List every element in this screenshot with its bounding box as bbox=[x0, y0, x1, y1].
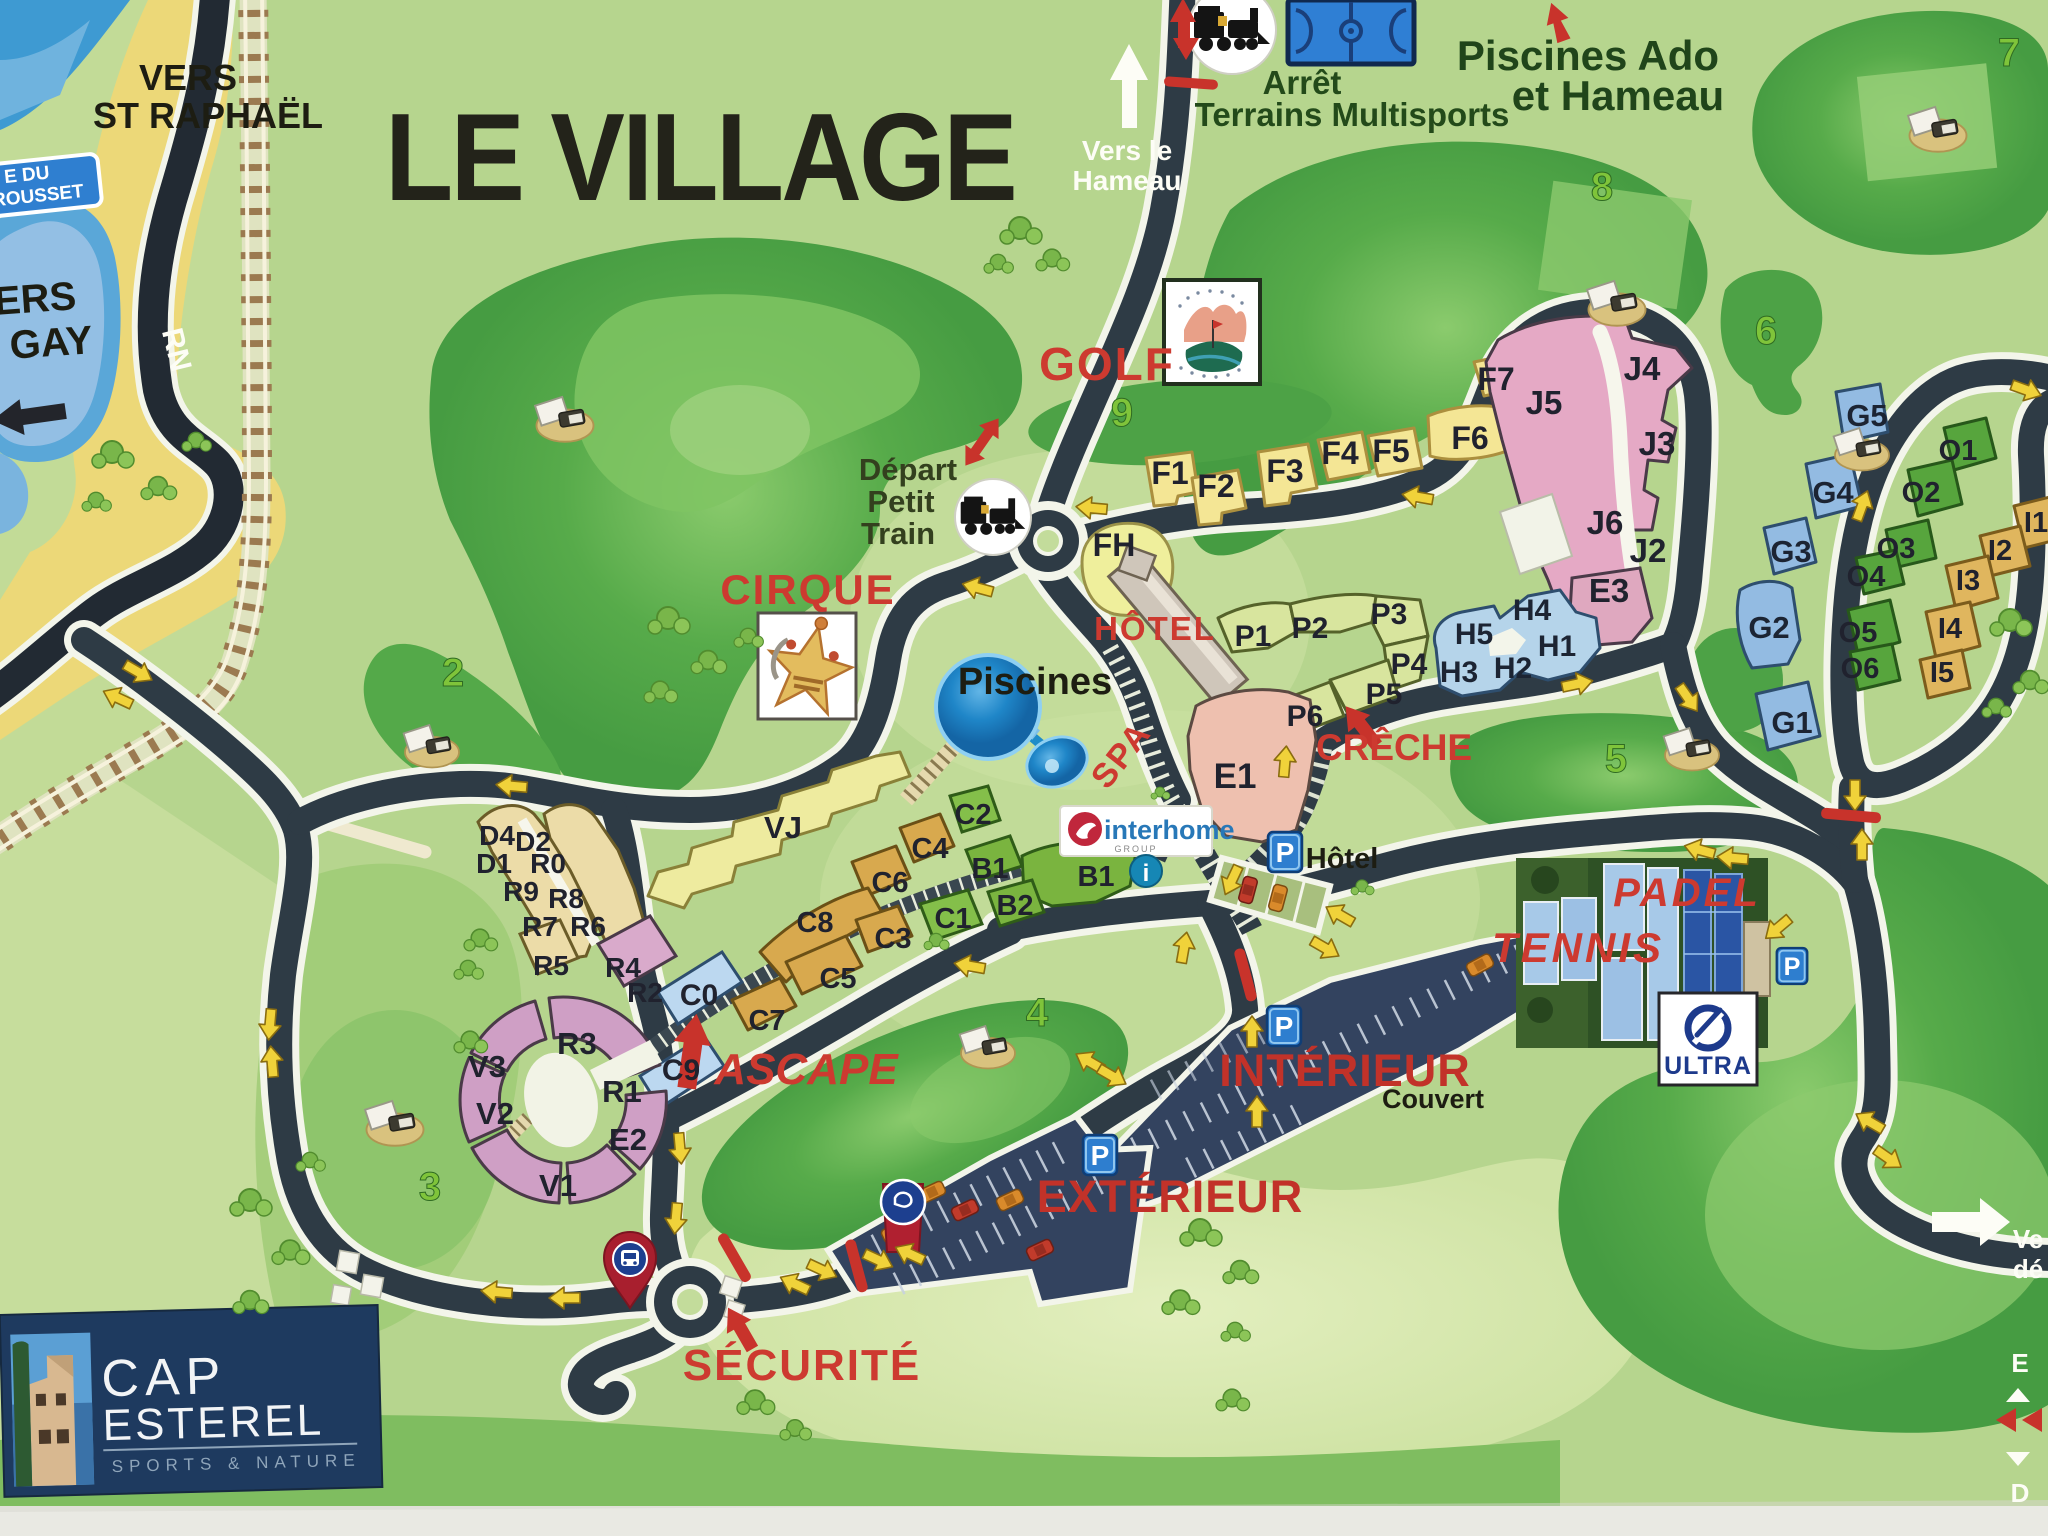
svg-text:Couvert: Couvert bbox=[1382, 1084, 1484, 1114]
svg-text:R7: R7 bbox=[522, 911, 558, 942]
svg-text:R8: R8 bbox=[548, 883, 584, 914]
svg-text:CIRQUE: CIRQUE bbox=[720, 566, 895, 613]
svg-text:P3: P3 bbox=[1371, 598, 1408, 631]
svg-text:I4: I4 bbox=[1938, 613, 1962, 645]
svg-text:G4: G4 bbox=[1812, 475, 1854, 510]
svg-text:P2: P2 bbox=[1292, 612, 1329, 645]
svg-text:C2: C2 bbox=[954, 799, 991, 831]
svg-text:H3: H3 bbox=[1440, 656, 1478, 689]
svg-text:G2: G2 bbox=[1748, 610, 1789, 645]
svg-text:V3: V3 bbox=[468, 1049, 506, 1084]
svg-text:O2: O2 bbox=[1902, 477, 1941, 509]
svg-text:H4: H4 bbox=[1513, 594, 1552, 627]
svg-text:C9: C9 bbox=[662, 1054, 700, 1087]
svg-text:O6: O6 bbox=[1841, 653, 1880, 685]
svg-text:2: 2 bbox=[442, 651, 464, 695]
svg-text:Petit: Petit bbox=[867, 484, 934, 519]
svg-text:E1: E1 bbox=[1214, 757, 1257, 796]
svg-text:Terrains Multisports: Terrains Multisports bbox=[1195, 96, 1510, 133]
svg-text:O1: O1 bbox=[1939, 435, 1978, 467]
svg-text:TENNIS: TENNIS bbox=[1492, 924, 1664, 971]
svg-text:Départ: Départ bbox=[859, 452, 957, 487]
svg-text:ULTRA: ULTRA bbox=[1664, 1052, 1752, 1080]
svg-text:B1: B1 bbox=[1077, 861, 1114, 893]
svg-text:P1: P1 bbox=[1235, 620, 1272, 653]
svg-text:4: 4 bbox=[1026, 991, 1049, 1035]
svg-text:9: 9 bbox=[1111, 391, 1133, 435]
svg-text:R6: R6 bbox=[570, 911, 606, 942]
svg-text:7: 7 bbox=[1998, 31, 2020, 75]
svg-text:F2: F2 bbox=[1197, 468, 1234, 504]
svg-text:interhome: interhome bbox=[1104, 815, 1235, 845]
svg-text:R3: R3 bbox=[557, 1026, 597, 1061]
svg-text:Piscines: Piscines bbox=[958, 661, 1112, 703]
svg-text:J6: J6 bbox=[1587, 504, 1624, 541]
svg-text:PADEL: PADEL bbox=[1613, 871, 1761, 915]
svg-text:B2: B2 bbox=[996, 890, 1033, 922]
svg-text:H2: H2 bbox=[1494, 652, 1532, 685]
svg-text:J3: J3 bbox=[1639, 425, 1676, 462]
svg-text:i: i bbox=[1143, 860, 1150, 887]
svg-text:VJ: VJ bbox=[764, 810, 802, 845]
svg-text:6: 6 bbox=[1755, 309, 1777, 353]
svg-text:8: 8 bbox=[1591, 165, 1613, 209]
svg-text:ST RAPHAËL: ST RAPHAËL bbox=[93, 95, 323, 136]
svg-text:F7: F7 bbox=[1477, 361, 1514, 397]
svg-text:C4: C4 bbox=[911, 833, 948, 865]
svg-text:I1: I1 bbox=[2024, 507, 2048, 539]
svg-text:C6: C6 bbox=[871, 867, 908, 899]
svg-text:CRÊCHE: CRÊCHE bbox=[1316, 726, 1472, 768]
svg-text:GAY: GAY bbox=[8, 318, 94, 368]
svg-text:G5: G5 bbox=[1846, 398, 1887, 433]
svg-text:LE VILLAGE: LE VILLAGE bbox=[385, 88, 1015, 227]
svg-text:I3: I3 bbox=[1956, 565, 1980, 597]
svg-text:Train: Train bbox=[861, 516, 935, 551]
svg-text:F3: F3 bbox=[1266, 453, 1303, 489]
svg-text:D4: D4 bbox=[479, 820, 515, 851]
svg-text:J2: J2 bbox=[1630, 532, 1667, 569]
svg-text:HÔTEL: HÔTEL bbox=[1094, 609, 1216, 647]
svg-text:G1: G1 bbox=[1771, 705, 1812, 740]
svg-text:O5: O5 bbox=[1839, 617, 1878, 649]
svg-text:Vers le: Vers le bbox=[1082, 135, 1172, 166]
svg-text:C1: C1 bbox=[934, 903, 971, 935]
svg-text:V1: V1 bbox=[539, 1168, 577, 1203]
svg-text:I2: I2 bbox=[1988, 535, 2012, 567]
svg-text:5: 5 bbox=[1605, 737, 1627, 781]
svg-text:H1: H1 bbox=[1538, 630, 1576, 663]
svg-text:R9: R9 bbox=[503, 876, 539, 907]
svg-text:V2: V2 bbox=[476, 1096, 514, 1131]
svg-text:J5: J5 bbox=[1526, 384, 1563, 421]
svg-text:D: D bbox=[2011, 1478, 2030, 1508]
svg-text:E2: E2 bbox=[609, 1122, 647, 1157]
svg-text:VERS: VERS bbox=[139, 57, 237, 98]
svg-text:F4: F4 bbox=[1321, 435, 1359, 471]
svg-text:SÉCURITÉ: SÉCURITÉ bbox=[683, 1340, 921, 1390]
svg-text:E: E bbox=[2011, 1348, 2028, 1378]
svg-text:Hameau: Hameau bbox=[1073, 165, 1182, 196]
svg-text:I5: I5 bbox=[1930, 657, 1954, 689]
svg-text:P5: P5 bbox=[1366, 678, 1403, 711]
svg-text:EXTÉRIEUR: EXTÉRIEUR bbox=[1037, 1171, 1304, 1222]
svg-text:GROUP: GROUP bbox=[1114, 844, 1157, 854]
svg-text:R5: R5 bbox=[533, 950, 569, 981]
svg-text:ESTEREL: ESTEREL bbox=[102, 1396, 325, 1451]
svg-text:C0: C0 bbox=[680, 979, 718, 1012]
svg-text:D1: D1 bbox=[476, 848, 512, 879]
svg-text:G3: G3 bbox=[1770, 534, 1811, 569]
svg-text:GOLF: GOLF bbox=[1039, 338, 1175, 390]
svg-text:3: 3 bbox=[419, 1165, 441, 1209]
svg-text:C8: C8 bbox=[796, 907, 833, 939]
svg-text:ERS: ERS bbox=[0, 274, 78, 324]
svg-text:C5: C5 bbox=[819, 963, 856, 995]
svg-text:et Hameau: et Hameau bbox=[1512, 72, 1724, 119]
svg-text:J4: J4 bbox=[1624, 350, 1661, 387]
svg-text:P4: P4 bbox=[1391, 648, 1428, 681]
svg-text:E3: E3 bbox=[1589, 572, 1629, 609]
svg-text:FH: FH bbox=[1093, 527, 1136, 563]
svg-text:O4: O4 bbox=[1847, 561, 1886, 593]
svg-text:P6: P6 bbox=[1287, 700, 1324, 733]
svg-text:R0: R0 bbox=[530, 848, 566, 879]
svg-text:Hôtel: Hôtel bbox=[1306, 843, 1379, 875]
svg-text:H5: H5 bbox=[1455, 618, 1493, 651]
svg-text:R2: R2 bbox=[627, 977, 663, 1008]
svg-text:F5: F5 bbox=[1372, 433, 1409, 469]
svg-text:F6: F6 bbox=[1451, 420, 1488, 456]
svg-text:C7: C7 bbox=[748, 1005, 785, 1037]
svg-text:C3: C3 bbox=[874, 923, 911, 955]
svg-text:dé: dé bbox=[2013, 1254, 2043, 1284]
svg-text:R1: R1 bbox=[602, 1074, 642, 1109]
svg-text:ASCAPE: ASCAPE bbox=[713, 1045, 899, 1094]
svg-text:F1: F1 bbox=[1151, 455, 1188, 491]
svg-text:B1: B1 bbox=[971, 853, 1008, 885]
svg-text:Ve: Ve bbox=[2013, 1224, 2043, 1254]
